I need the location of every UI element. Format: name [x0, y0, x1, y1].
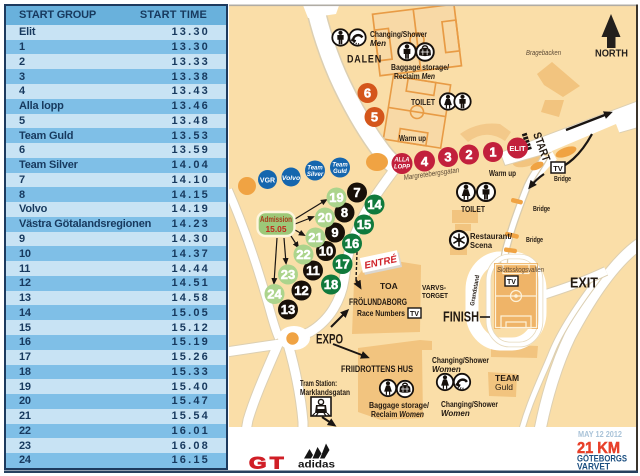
svg-text:DALEN: DALEN [347, 54, 382, 66]
svg-text:22: 22 [296, 247, 310, 262]
svg-text:Warm up: Warm up [399, 133, 426, 143]
svg-text:9: 9 [331, 225, 338, 240]
svg-text:Guld: Guld [495, 382, 513, 392]
svg-text:TORGET: TORGET [422, 291, 448, 300]
svg-text:Bragebacken: Bragebacken [526, 48, 561, 57]
svg-text:TOA: TOA [380, 281, 398, 291]
svg-text:FRIIDROTTENS HUS: FRIIDROTTENS HUS [341, 364, 413, 374]
svg-text:Guld: Guld [333, 169, 347, 175]
svg-text:Team: Team [332, 163, 348, 169]
svg-text:Reclaim Women: Reclaim Women [371, 410, 424, 419]
svg-text:VGR: VGR [260, 178, 275, 185]
svg-text:Men: Men [370, 39, 386, 48]
svg-text:Team: Team [307, 166, 323, 172]
svg-text:Baggage storage/: Baggage storage/ [369, 401, 430, 410]
svg-text:adidas: adidas [298, 460, 336, 471]
svg-text:Tram Station:: Tram Station: [300, 379, 337, 388]
svg-text:Silver: Silver [307, 172, 324, 178]
svg-text:EXPO: EXPO [316, 331, 343, 347]
svg-text:20: 20 [318, 210, 332, 225]
svg-text:Changing/Shower: Changing/Shower [432, 356, 489, 365]
svg-text:23: 23 [281, 267, 295, 282]
svg-text:VARVET: VARVET [577, 462, 611, 472]
svg-text:Changing/Shower: Changing/Shower [370, 30, 427, 39]
svg-text:FINISH: FINISH [443, 310, 479, 326]
svg-text:15: 15 [357, 217, 371, 232]
svg-text:Changing/Shower: Changing/Shower [441, 400, 498, 409]
svg-text:1: 1 [489, 145, 496, 160]
svg-text:TOILET: TOILET [461, 205, 485, 214]
svg-text:EXIT: EXIT [570, 276, 598, 292]
svg-text:GT: GT [249, 455, 287, 473]
svg-text:15.05: 15.05 [266, 224, 287, 234]
svg-text:6: 6 [364, 86, 371, 101]
svg-text:Women: Women [432, 365, 461, 374]
svg-text:TV: TV [410, 311, 419, 318]
svg-text:14: 14 [367, 197, 382, 212]
svg-text:TOILET: TOILET [411, 98, 435, 107]
svg-text:ELIT: ELIT [509, 144, 526, 153]
svg-text:Reclaim Men: Reclaim Men [394, 72, 435, 81]
svg-text:Admission: Admission [260, 215, 292, 224]
svg-text:FRÖLUNDABORG: FRÖLUNDABORG [349, 297, 407, 307]
svg-text:Restaurant/: Restaurant/ [470, 232, 513, 241]
svg-text:TV: TV [507, 279, 516, 286]
svg-text:MAY 12 2012: MAY 12 2012 [578, 429, 622, 439]
svg-text:12: 12 [294, 283, 308, 298]
svg-text:Women: Women [441, 409, 470, 418]
svg-text:Warm up: Warm up [489, 168, 516, 178]
svg-text:LOPP: LOPP [394, 164, 411, 171]
svg-text:5: 5 [371, 110, 378, 125]
svg-text:Baggage storage/: Baggage storage/ [391, 63, 450, 72]
svg-text:21: 21 [308, 230, 322, 245]
svg-text:3: 3 [444, 150, 451, 165]
svg-text:ALLA: ALLA [394, 157, 410, 164]
svg-text:NORTH: NORTH [595, 48, 628, 60]
svg-text:19: 19 [329, 190, 343, 205]
svg-text:Scena: Scena [470, 241, 493, 250]
svg-text:Bridge: Bridge [533, 206, 550, 213]
svg-text:7: 7 [353, 185, 360, 200]
svg-text:Race Numbers: Race Numbers [357, 308, 405, 318]
svg-text:Marklandsgatan: Marklandsgatan [300, 388, 350, 397]
svg-text:Slottsskogsvallen: Slottsskogsvallen [497, 267, 544, 274]
svg-text:24: 24 [267, 287, 282, 302]
svg-text:17: 17 [335, 257, 349, 272]
svg-text:8: 8 [341, 205, 348, 220]
svg-text:11: 11 [306, 263, 320, 278]
svg-text:Bridge: Bridge [526, 237, 543, 244]
svg-text:16: 16 [345, 236, 359, 251]
svg-text:13: 13 [281, 302, 295, 317]
svg-text:Volvo: Volvo [282, 175, 300, 182]
svg-text:2: 2 [465, 147, 472, 162]
svg-text:4: 4 [421, 154, 429, 169]
svg-text:18: 18 [324, 277, 338, 292]
svg-text:TV: TV [553, 164, 563, 173]
svg-text:Bridge: Bridge [554, 176, 571, 183]
